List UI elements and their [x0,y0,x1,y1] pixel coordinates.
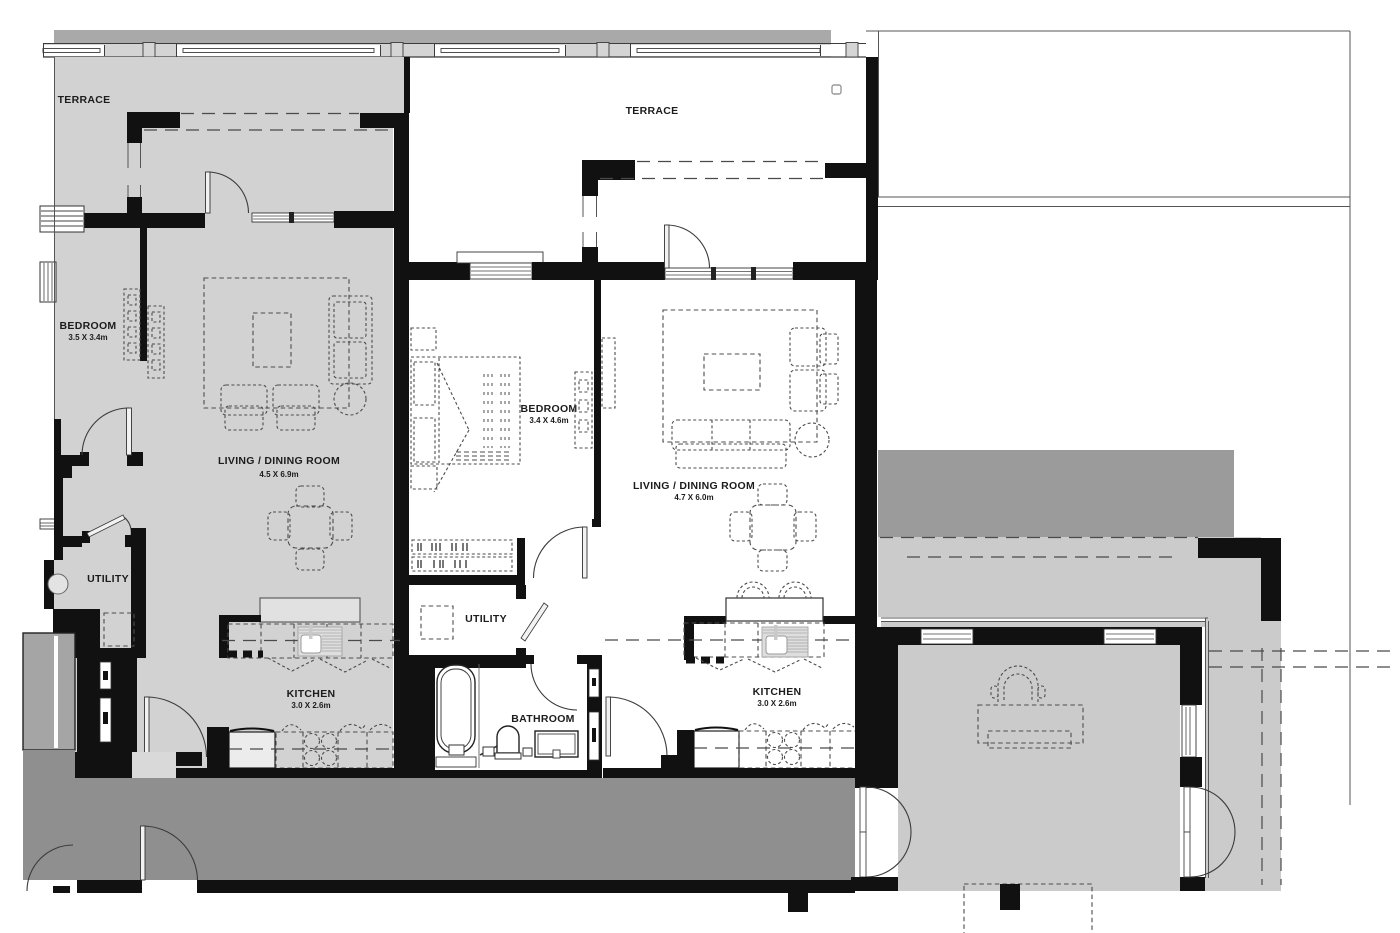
svg-text:4.7 X 6.0m: 4.7 X 6.0m [674,493,713,502]
svg-text:UTILITY: UTILITY [87,573,129,585]
svg-text:3.5 X 3.4m: 3.5 X 3.4m [68,333,107,342]
svg-text:TERRACE: TERRACE [626,105,679,117]
svg-text:BEDROOM: BEDROOM [521,403,578,415]
svg-text:BEDROOM: BEDROOM [60,320,117,332]
svg-text:4.5 X 6.9m: 4.5 X 6.9m [259,470,298,479]
svg-text:BATHROOM: BATHROOM [511,713,574,725]
svg-text:TERRACE: TERRACE [58,94,111,106]
svg-text:KITCHEN: KITCHEN [753,686,802,698]
svg-text:LIVING / DINING ROOM: LIVING / DINING ROOM [633,480,755,492]
svg-text:KITCHEN: KITCHEN [287,688,336,700]
svg-text:3.0 X 2.6m: 3.0 X 2.6m [291,701,330,710]
svg-text:3.0 X 2.6m: 3.0 X 2.6m [757,699,796,708]
svg-text:UTILITY: UTILITY [465,613,507,625]
svg-text:LIVING / DINING ROOM: LIVING / DINING ROOM [218,455,340,467]
svg-text:3.4 X 4.6m: 3.4 X 4.6m [529,416,568,425]
